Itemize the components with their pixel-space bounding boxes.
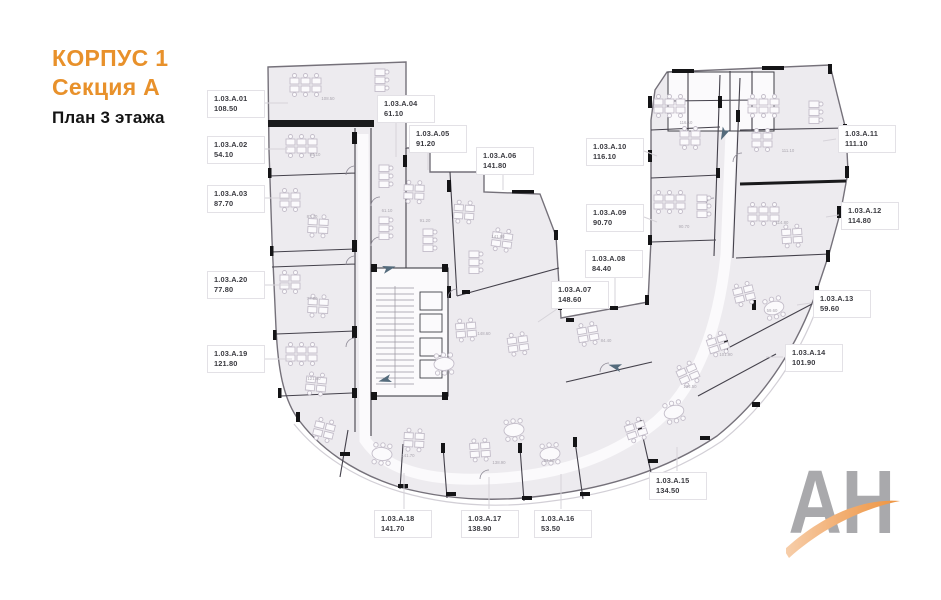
room-label: 1.03.А.1359.60 (813, 290, 871, 318)
room-area-inline: 91.20 (420, 218, 431, 223)
room-area-inline: 108.50 (321, 96, 335, 101)
room-area-inline: 121.80 (307, 376, 321, 381)
room-number: 1.03.А.16 (541, 514, 585, 524)
room-area: 59.60 (820, 304, 864, 314)
room-area-inline: 61.10 (382, 208, 393, 213)
title-block: КОРПУС 1 Секция А План 3 этажа (52, 44, 168, 128)
room-label: 1.03.А.12114.80 (841, 202, 899, 230)
room-label: 1.03.А.15134.50 (649, 472, 707, 500)
room-area: 87.70 (214, 199, 258, 209)
room-area: 134.50 (656, 486, 700, 496)
room-area-inline: 148.60 (477, 331, 491, 336)
room-area: 53.50 (541, 524, 585, 534)
room-label: 1.03.А.0591.20 (409, 125, 467, 153)
room-area-inline: 141.80 (491, 234, 505, 239)
room-area: 108.50 (214, 104, 258, 114)
room-area-inline: 116.10 (680, 120, 693, 125)
room-area: 90.70 (593, 218, 637, 228)
room-number: 1.03.А.08 (592, 254, 636, 264)
room-label: 1.03.А.19121.80 (207, 345, 265, 373)
room-number: 1.03.А.06 (483, 151, 527, 161)
room-number: 1.03.А.07 (558, 285, 602, 295)
room-label: 1.03.А.2077.80 (207, 271, 265, 299)
room-number: 1.03.А.19 (214, 349, 258, 359)
room-area-inline: 138.90 (492, 460, 506, 465)
floor-title: План 3 этажа (52, 108, 168, 128)
room-number: 1.03.А.04 (384, 99, 428, 109)
room-area-inline: 101.90 (719, 352, 733, 357)
room-label: 1.03.А.11111.10 (838, 125, 896, 153)
room-area: 77.80 (214, 285, 258, 295)
room-number: 1.03.А.17 (468, 514, 512, 524)
room-label: 1.03.А.0254.10 (207, 136, 265, 164)
room-number: 1.03.А.20 (214, 275, 258, 285)
room-label: 1.03.А.10116.10 (586, 138, 644, 166)
room-number: 1.03.А.02 (214, 140, 258, 150)
room-number: 1.03.А.03 (214, 189, 258, 199)
room-area: 61.10 (384, 109, 428, 119)
room-number: 1.03.А.12 (848, 206, 892, 216)
room-number: 1.03.А.14 (792, 348, 836, 358)
room-area: 138.90 (468, 524, 512, 534)
room-label: 1.03.А.0990.70 (586, 204, 644, 232)
section-title: Секция А (52, 73, 168, 102)
room-area-inline: 77.80 (307, 296, 318, 301)
room-number: 1.03.А.01 (214, 94, 258, 104)
floor-plan-page: 108.5054.1087.7061.1091.20141.80148.6084… (0, 0, 941, 600)
room-number: 1.03.А.11 (845, 129, 889, 139)
room-area: 91.20 (416, 139, 460, 149)
room-area-inline: 134.50 (683, 384, 697, 389)
room-area-inline: 54.10 (310, 152, 321, 157)
room-number: 1.03.А.13 (820, 294, 864, 304)
watermark-logo: АН (786, 458, 941, 568)
room-area: 111.10 (845, 139, 889, 149)
room-area-inline: 84.40 (601, 338, 612, 343)
room-area: 116.10 (593, 152, 637, 162)
room-area: 54.10 (214, 150, 258, 160)
room-label: 1.03.А.14101.90 (785, 344, 843, 372)
stair-core (371, 268, 448, 396)
room-number: 1.03.А.15 (656, 476, 700, 486)
room-label: 1.03.А.1653.50 (534, 510, 592, 538)
heavy-wall (268, 120, 374, 127)
room-label: 1.03.А.01108.50 (207, 90, 265, 118)
room-label: 1.03.А.18141.70 (374, 510, 432, 538)
room-number: 1.03.А.09 (593, 208, 637, 218)
room-area: 141.70 (381, 524, 425, 534)
room-area: 84.40 (592, 264, 636, 274)
logo-svg: АН (786, 458, 941, 568)
room-area: 148.60 (558, 295, 602, 305)
room-number: 1.03.А.18 (381, 514, 425, 524)
room-area-inline: 141.70 (401, 453, 415, 458)
room-area-inline: 87.70 (307, 214, 318, 219)
room-label: 1.03.А.0461.10 (377, 95, 435, 123)
room-label: 1.03.А.0884.40 (585, 250, 643, 278)
room-number: 1.03.А.05 (416, 129, 460, 139)
room-area: 121.80 (214, 359, 258, 369)
room-area-inline: 53.50 (544, 458, 555, 463)
room-number: 1.03.А.10 (593, 142, 637, 152)
room-label: 1.03.А.17138.90 (461, 510, 519, 538)
room-area-inline: 59.60 (767, 308, 778, 313)
room-area-inline: 114.80 (776, 220, 789, 225)
room-area: 141.80 (483, 161, 527, 171)
room-area: 101.90 (792, 358, 836, 368)
room-label: 1.03.А.06141.80 (476, 147, 534, 175)
room-area: 114.80 (848, 216, 892, 226)
building-title: КОРПУС 1 (52, 44, 168, 73)
room-label: 1.03.А.07148.60 (551, 281, 609, 309)
room-area-inline: 90.70 (679, 224, 690, 229)
room-label: 1.03.А.0387.70 (207, 185, 265, 213)
room-area-inline: 111.10 (782, 148, 795, 153)
